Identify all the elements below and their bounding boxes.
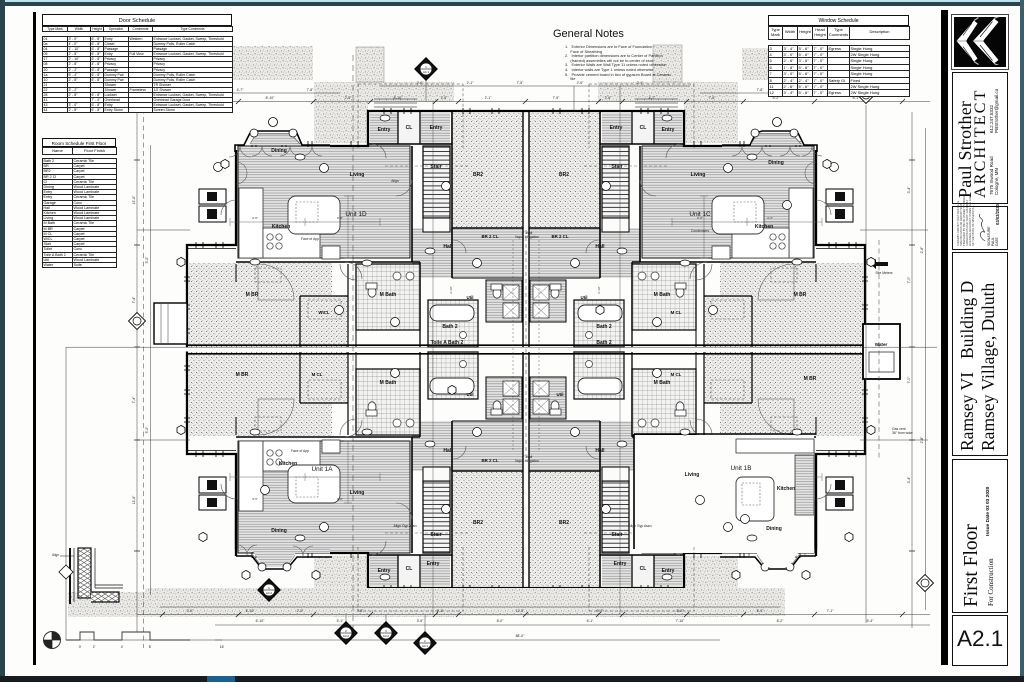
svg-text:3'-4": 3'-4" <box>907 186 911 194</box>
svg-text:2'-8": 2'-8" <box>920 436 924 444</box>
svg-text:4': 4' <box>121 645 124 649</box>
svg-text:2'-1": 2'-1" <box>485 96 493 100</box>
svg-text:M CL: M CL <box>671 372 682 377</box>
svg-text:3'-5": 3'-5" <box>417 619 425 623</box>
svg-text:Living: Living <box>350 172 365 178</box>
svg-text:Entry: Entry <box>614 561 627 567</box>
svg-text:Kitchen: Kitchen <box>279 461 297 467</box>
svg-text:9'-7": 9'-7" <box>597 609 605 613</box>
svg-text:Bath 2: Bath 2 <box>442 324 458 330</box>
svg-text:2'-8": 2'-8" <box>920 246 924 254</box>
svg-text:8'-10": 8'-10" <box>266 96 275 100</box>
svg-text:Hall: Hall <box>443 448 453 454</box>
svg-text:Unit 1A: Unit 1A <box>312 466 334 473</box>
svg-text:7'-4": 7'-4" <box>132 296 136 304</box>
svg-text:A4.2: A4.2 <box>383 634 390 638</box>
svg-text:A4.2: A4.2 <box>343 634 350 638</box>
svg-text:BR 2 CL: BR 2 CL <box>481 234 498 239</box>
svg-text:M CL: M CL <box>671 310 682 315</box>
svg-text:CL: CL <box>406 125 413 131</box>
svg-text:Stair: Stair <box>430 164 441 170</box>
svg-text:7'-1": 7'-1" <box>827 609 835 613</box>
svg-text:Entry: Entry <box>378 568 391 574</box>
svg-text:Kitchen: Kitchen <box>272 224 290 230</box>
svg-text:5'-4": 5'-4" <box>757 609 765 613</box>
svg-text:5'-10": 5'-10" <box>246 609 255 613</box>
svg-text:CL: CL <box>640 125 647 131</box>
svg-text:7'-10": 7'-10" <box>676 619 685 623</box>
svg-text:BR 2 CL: BR 2 CL <box>481 458 498 463</box>
svg-text:Hall: Hall <box>595 448 605 454</box>
svg-text:8'-10": 8'-10" <box>394 96 403 100</box>
svg-text:13'-6": 13'-6" <box>132 495 136 504</box>
svg-text:CL: CL <box>640 566 647 572</box>
svg-text:Living: Living <box>691 172 706 178</box>
svg-text:2'-10": 2'-10" <box>449 286 453 294</box>
svg-text:Dining: Dining <box>766 526 782 532</box>
svg-text:2'-0": 2'-0" <box>417 81 425 85</box>
svg-text:Kitchen: Kitchen <box>755 224 773 230</box>
svg-text:M Bath: M Bath <box>380 380 397 386</box>
svg-text:8': 8' <box>149 645 152 649</box>
svg-text:8'-2": 8'-2" <box>777 619 785 623</box>
svg-text:Dining: Dining <box>271 148 287 154</box>
svg-text:Bath 2: Bath 2 <box>596 324 612 330</box>
svg-text:Bath 2: Bath 2 <box>596 340 612 346</box>
svg-text:2': 2' <box>93 645 96 649</box>
svg-text:M BR: M BR <box>236 372 249 378</box>
svg-text:2'-0": 2'-0" <box>297 609 305 613</box>
svg-text:Water: Water <box>875 342 888 347</box>
svg-text:Hall: Hall <box>443 244 453 250</box>
svg-text:Vapor Mitigation: Vapor Mitigation <box>515 235 539 239</box>
svg-text:Entry: Entry <box>662 568 675 574</box>
svg-text:7'-0": 7'-0" <box>907 376 911 384</box>
svg-text:4'-6": 4'-6" <box>252 216 258 220</box>
svg-text:Kitchen: Kitchen <box>777 486 795 492</box>
svg-text:A4.2: A4.2 <box>266 591 273 595</box>
svg-text:Util: Util <box>466 392 473 397</box>
svg-text:Entry: Entry <box>662 127 675 133</box>
svg-text:M Bath: M Bath <box>654 380 671 386</box>
svg-text:9'-8": 9'-8" <box>337 497 343 501</box>
svg-text:4'-6": 4'-6" <box>767 216 773 220</box>
svg-text:Stair: Stair <box>611 164 622 170</box>
svg-text:2'-6": 2'-6" <box>441 96 449 100</box>
svg-text:M BR: M BR <box>246 292 259 298</box>
svg-text:36" from wdw: 36" from wdw <box>892 431 913 435</box>
svg-text:8'-0": 8'-0" <box>497 619 505 623</box>
svg-text:9'-8": 9'-8" <box>337 216 343 220</box>
svg-text:M Bath: M Bath <box>654 292 671 298</box>
svg-text:Entry: Entry <box>378 127 391 133</box>
svg-text:8'-2": 8'-2" <box>677 609 685 613</box>
svg-text:Stair: Stair <box>611 532 622 538</box>
svg-text:88'-0": 88'-0" <box>516 634 525 638</box>
svg-text:Align Gyp Assn: Align Gyp Assn <box>629 524 652 528</box>
svg-text:13'-6": 13'-6" <box>132 195 136 204</box>
svg-text:2'-1": 2'-1" <box>467 81 475 85</box>
svg-text:A4.1: A4.1 <box>423 70 430 74</box>
svg-text:Util: Util <box>556 392 563 397</box>
svg-text:Align: Align <box>52 553 59 557</box>
svg-text:Align Gyp Assn: Align Gyp Assn <box>394 524 417 528</box>
svg-text:2'-6": 2'-6" <box>605 96 613 100</box>
svg-text:Dining: Dining <box>768 160 784 166</box>
svg-text:Util: Util <box>580 295 587 300</box>
svg-text:Face of App: Face of App <box>301 237 319 241</box>
svg-text:Site Meters: Site Meters <box>875 271 892 275</box>
svg-text:BR 2 CL: BR 2 CL <box>551 234 568 239</box>
svg-text:Vapor Mitigation: Vapor Mitigation <box>515 459 539 463</box>
svg-text:M Bath: M Bath <box>380 292 397 298</box>
svg-text:Condensers: Condensers <box>691 229 710 233</box>
svg-text:6'-10": 6'-10" <box>256 619 265 623</box>
svg-text:7'-8": 7'-8" <box>357 609 365 613</box>
svg-text:WICL: WICL <box>318 310 330 315</box>
svg-text:Living: Living <box>350 490 365 496</box>
svg-text:Entry: Entry <box>430 125 443 131</box>
svg-text:7'-4": 7'-4" <box>132 396 136 404</box>
svg-text:4'-6": 4'-6" <box>252 497 258 501</box>
svg-text:5'-4": 5'-4" <box>867 619 875 623</box>
svg-text:Stair: Stair <box>430 532 441 538</box>
svg-text:BR2: BR2 <box>559 172 569 178</box>
svg-text:A4.1: A4.1 <box>422 644 429 648</box>
svg-text:Living: Living <box>685 472 700 478</box>
svg-text:5'-2": 5'-2" <box>145 426 149 434</box>
svg-text:M BR: M BR <box>804 376 817 382</box>
svg-text:4'-7": 4'-7" <box>649 96 657 100</box>
svg-text:7'-6": 7'-6" <box>709 96 717 100</box>
svg-text:Dining: Dining <box>271 528 287 534</box>
svg-text:5'-1": 5'-1" <box>337 619 345 623</box>
svg-text:7'-8": 7'-8" <box>757 88 765 92</box>
svg-text:M BR: M BR <box>794 292 807 298</box>
svg-text:11'-5": 11'-5" <box>516 609 525 613</box>
svg-text:Entry: Entry <box>610 125 623 131</box>
svg-text:6'-1": 6'-1" <box>587 619 595 623</box>
svg-text:4'-7": 4'-7" <box>237 88 245 92</box>
svg-text:3'-0": 3'-0" <box>187 609 195 613</box>
svg-text:CL: CL <box>406 566 413 572</box>
svg-text:Toile A Bath 2: Toile A Bath 2 <box>431 340 464 346</box>
svg-text:BR2: BR2 <box>473 172 483 178</box>
svg-text:BR2: BR2 <box>559 520 569 526</box>
svg-text:3'-4": 3'-4" <box>907 476 911 484</box>
svg-text:Unit 1D: Unit 1D <box>345 211 367 218</box>
svg-text:Face of App: Face of App <box>291 449 309 453</box>
svg-text:16': 16' <box>220 645 225 649</box>
svg-text:Util: Util <box>466 295 473 300</box>
svg-text:Entry: Entry <box>427 561 440 567</box>
svg-text:5'-2": 5'-2" <box>145 256 149 264</box>
svg-text:Hall: Hall <box>595 244 605 250</box>
svg-text:BR2: BR2 <box>473 520 483 526</box>
svg-text:7'-0": 7'-0" <box>907 276 911 284</box>
svg-text:Align: Align <box>391 179 399 183</box>
svg-text:2'-6": 2'-6" <box>345 96 353 100</box>
svg-text:M CL: M CL <box>312 372 323 377</box>
svg-text:7'-5": 7'-5" <box>517 81 525 85</box>
svg-text:Unit 1B: Unit 1B <box>731 465 752 472</box>
svg-text:Unit 1C: Unit 1C <box>689 211 711 218</box>
svg-text:2'-10": 2'-10" <box>597 286 601 294</box>
svg-text:7'-8": 7'-8" <box>307 88 315 92</box>
svg-text:7'-5": 7'-5" <box>553 96 561 100</box>
svg-text:9'-1": 9'-1" <box>437 609 445 613</box>
svg-text:0': 0' <box>79 645 82 649</box>
